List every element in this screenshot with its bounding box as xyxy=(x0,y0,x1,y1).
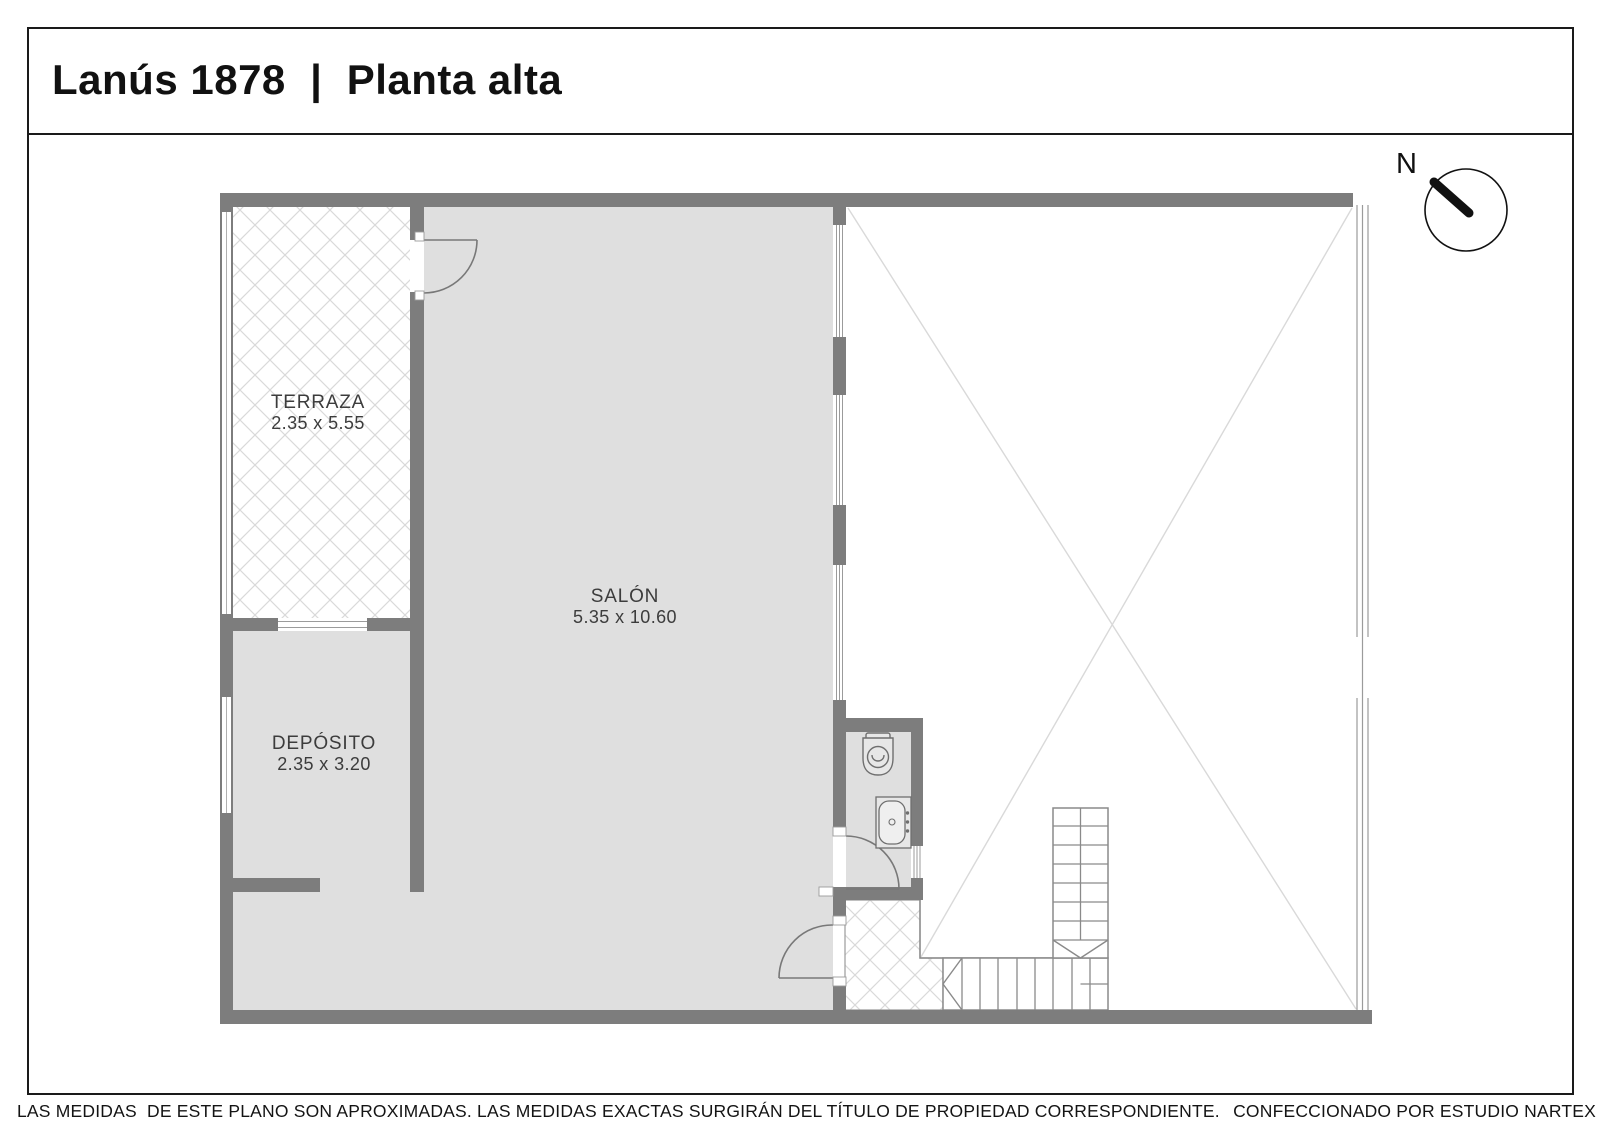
void-edge xyxy=(920,900,1053,958)
footer-credit: CONFECCIONADO POR ESTUDIO NARTEX xyxy=(1233,1101,1596,1122)
landing-hatch xyxy=(845,900,943,1010)
terraza-dimensions: 2.35 x 5.55 xyxy=(271,413,365,434)
floor-plan xyxy=(0,0,1600,1131)
window-salon-east-2 xyxy=(833,395,846,505)
window-salon-east-3 xyxy=(833,565,846,700)
wall-top xyxy=(220,193,1353,207)
wall-east-2 xyxy=(833,337,846,395)
salon-name: SALÓN xyxy=(573,586,677,607)
wall-bottom xyxy=(220,1010,1372,1024)
wall-east-1 xyxy=(833,207,846,225)
window-bathroom-right xyxy=(911,846,923,878)
deposito-name: DEPÓSITO xyxy=(272,733,376,754)
window-terraza-left xyxy=(222,212,231,614)
window-deposito-left xyxy=(222,697,231,813)
footer-disclaimer: LAS MEDIDAS DE ESTE PLANO SON APROXIMADA… xyxy=(17,1101,1220,1122)
sink-icon xyxy=(876,797,911,848)
terraza-name: TERRAZA xyxy=(271,392,365,413)
salon-label: SALÓN 5.35 x 10.60 xyxy=(573,586,677,628)
wall-bathroom-top xyxy=(833,718,923,732)
window-terraza-bottom xyxy=(278,618,367,631)
staircase xyxy=(943,808,1108,1010)
salon-dimensions: 5.35 x 10.60 xyxy=(573,607,677,628)
wall-east-3 xyxy=(833,505,846,565)
void-cross-line-2 xyxy=(921,208,1352,957)
wall-deposito-stub xyxy=(233,878,320,892)
compass-icon xyxy=(1425,169,1507,251)
north-label: N xyxy=(1396,148,1417,181)
deposito-dimensions: 2.35 x 3.20 xyxy=(272,754,376,775)
deposito-label: DEPÓSITO 2.35 x 3.20 xyxy=(272,733,376,775)
toilet-icon xyxy=(863,733,893,775)
terraza-label: TERRAZA 2.35 x 5.55 xyxy=(271,392,365,434)
window-salon-east-1 xyxy=(833,225,846,337)
wall-terraza-lower xyxy=(410,292,424,631)
wall-deposito-right xyxy=(410,631,424,892)
window-wall-right xyxy=(1357,205,1368,1010)
